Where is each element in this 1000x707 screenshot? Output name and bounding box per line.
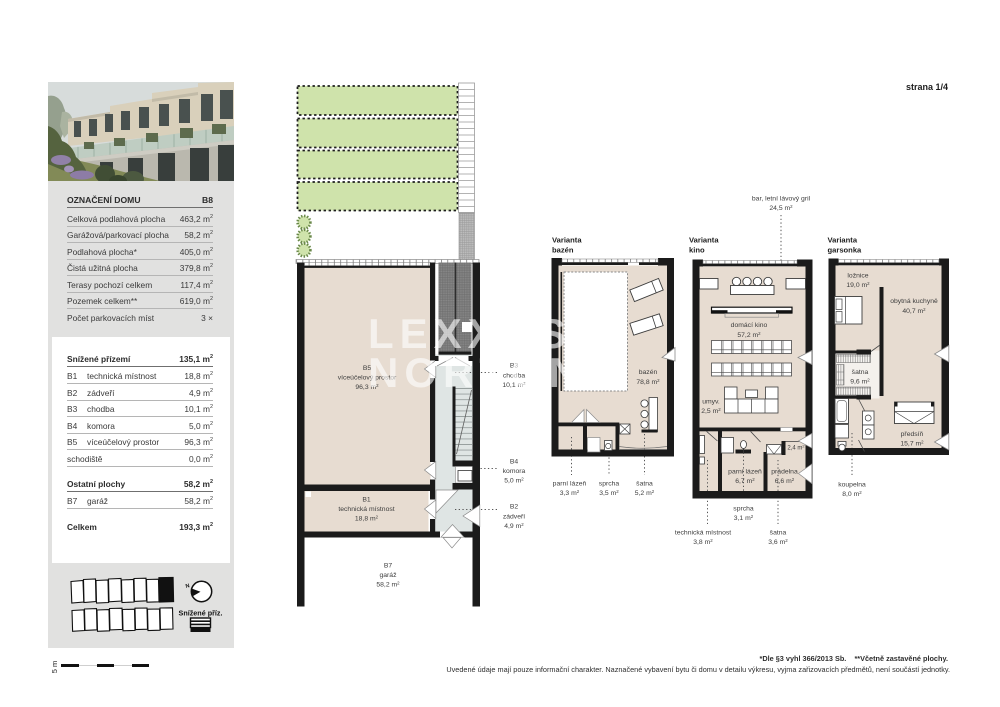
svg-text:technická místnost: technická místnost [338,506,394,513]
svg-text:40,7 m2: 40,7 m2 [902,307,926,315]
svg-text:B2: B2 [510,504,519,511]
svg-text:prádelna: prádelna [771,469,798,476]
svg-text:NORTON: NORTON [368,349,585,396]
svg-text:19,0 m2: 19,0 m2 [846,281,870,289]
svg-text:Snížené příz.: Snížené příz. [179,609,223,618]
svg-text:B1: B1 [362,497,371,504]
svg-text:parní lázeň: parní lázeň [553,481,587,488]
svg-text:6,6 m2: 6,6 m2 [775,477,795,485]
svg-text:umyv.: umyv. [702,399,720,406]
svg-text:bar, letní lávový gril: bar, letní lávový gril [752,196,811,203]
svg-text:78,8 m2: 78,8 m2 [636,378,660,386]
svg-text:15,7 m2: 15,7 m2 [900,440,924,448]
svg-text:4,9 m2: 4,9 m2 [504,522,524,530]
svg-text:3,1 m2: 3,1 m2 [734,514,754,522]
svg-text:sprcha: sprcha [733,506,754,513]
svg-text:Varianta: Varianta [828,236,858,245]
svg-text:ložnice: ložnice [847,273,868,280]
svg-text:šatna: šatna [636,481,653,488]
svg-text:obytná kuchyně: obytná kuchyně [890,298,938,305]
svg-text:3,8 m2: 3,8 m2 [693,538,713,546]
svg-text:18,8 m2: 18,8 m2 [355,515,379,523]
svg-text:komora: komora [503,468,526,475]
svg-text:2,5 m2: 2,5 m2 [701,407,721,415]
svg-text:8,0 m2: 8,0 m2 [842,490,862,498]
svg-text:24,5 m2: 24,5 m2 [769,204,793,212]
svg-text:Varianta: Varianta [689,236,719,245]
svg-text:58,2 m2: 58,2 m2 [376,581,400,589]
svg-text:3,3 m2: 3,3 m2 [560,489,580,497]
svg-text:předsíň: předsíň [901,431,924,438]
svg-text:sprcha: sprcha [599,481,620,488]
svg-text:domácí kino: domácí kino [731,322,768,329]
svg-text:B7: B7 [384,563,393,570]
svg-text:B4: B4 [510,459,519,466]
svg-text:6,7 m2: 6,7 m2 [735,477,755,485]
svg-text:3,5 m2: 3,5 m2 [599,489,619,497]
svg-text:šatna: šatna [770,530,787,537]
svg-text:technická místnost: technická místnost [675,530,731,537]
svg-text:5,2 m2: 5,2 m2 [635,489,655,497]
svg-text:zádveří: zádveří [503,514,525,521]
svg-text:garsonka: garsonka [828,246,863,255]
svg-text:5,0 m2: 5,0 m2 [504,477,524,485]
svg-text:bazén: bazén [552,246,574,255]
svg-text:garáž: garáž [379,572,397,579]
svg-text:šatna: šatna [852,369,869,376]
svg-text:bazén: bazén [639,369,658,376]
svg-text:parní lázeň: parní lázeň [728,469,762,476]
svg-text:9,6 m2: 9,6 m2 [850,378,870,386]
svg-text:3,6 m2: 3,6 m2 [768,538,788,546]
svg-text:57,2 m2: 57,2 m2 [737,331,761,339]
svg-text:koupelna: koupelna [838,482,866,489]
svg-text:Varianta: Varianta [552,236,582,245]
svg-text:kino: kino [689,246,705,255]
svg-text:N: N [185,583,190,590]
